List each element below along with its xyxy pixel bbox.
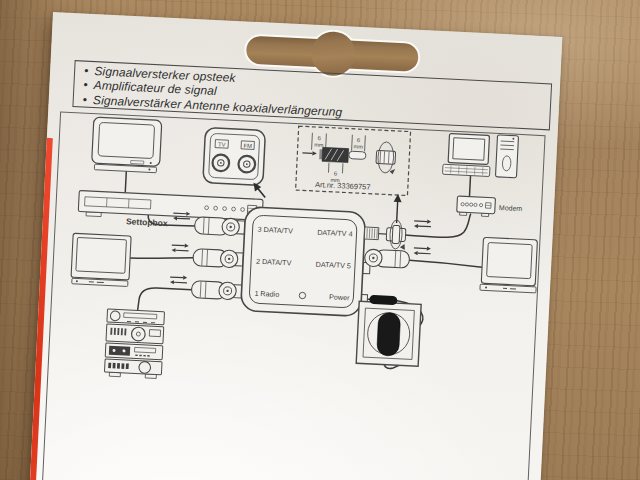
package-back-panel: •Signaalversterker opsteek •Amplificateu… <box>26 12 563 480</box>
splitter-box-icon <box>233 206 373 316</box>
splitter-port-label: Power <box>329 292 350 302</box>
connection-diagram: Settopbox <box>39 113 544 480</box>
cable-computer-modem <box>469 176 470 197</box>
coax-plug-icon <box>194 217 239 236</box>
double-arrow-icon <box>170 275 187 285</box>
bullet-glyph: • <box>82 92 87 106</box>
coax-plug-icon <box>364 249 409 268</box>
splitter-port-label: 1 Radio <box>254 289 279 299</box>
cable-tv2-splitter <box>130 255 193 261</box>
splitter-port-label: DATA/TV 5 <box>315 260 351 271</box>
double-arrow-icon <box>414 219 431 229</box>
dimension-unit: mm <box>314 141 324 147</box>
power-plug-icon <box>377 312 401 356</box>
coax-plug-icon <box>191 281 236 300</box>
splitter-port-label: 2 DATA/TV <box>256 257 292 268</box>
splitter-port-label: DATA/TV 4 <box>317 228 353 239</box>
cable-tv1-settopbox <box>125 171 126 193</box>
settopbox-label: Settopbox <box>126 216 168 228</box>
wall-plate-icon <box>203 128 266 186</box>
power-connector-icon <box>369 295 397 305</box>
bullet-glyph: • <box>83 78 88 92</box>
wall-plate-arrow-icon <box>253 182 266 197</box>
dimension-unit: mm <box>354 143 364 149</box>
computer-icon <box>443 132 519 178</box>
cable-stereo-splitter <box>137 287 191 314</box>
double-arrow-icon <box>171 243 188 253</box>
detail-callout-box: 6 mm 6 mm 6 mm <box>296 126 411 195</box>
diagram-frame: Settopbox <box>38 111 545 480</box>
threaded-adapter-icon <box>364 227 387 240</box>
modem-icon <box>457 196 496 217</box>
tv-right-icon <box>480 237 539 293</box>
modem-label: Modem <box>499 204 523 212</box>
tv-left-icon <box>71 233 131 286</box>
wall-plate-tv-label: TV <box>218 141 226 147</box>
stereo-system-icon <box>104 309 164 379</box>
coax-coupler-icon <box>386 220 406 250</box>
crt-tv-icon <box>91 117 161 173</box>
dimension-value: 6 <box>334 170 338 176</box>
splitter-port-label: 3 DATA/TV <box>257 225 293 236</box>
coax-plug-icon <box>193 249 238 268</box>
bullet-glyph: • <box>84 64 89 78</box>
cable-tv3-splitter <box>409 260 482 267</box>
art-number-label: Art.nr. 33369757 <box>315 180 371 192</box>
dimension-value: 6 <box>317 135 321 141</box>
callout-arrow-icon <box>393 194 402 223</box>
wall-plate-fm-label: FM <box>243 143 252 149</box>
double-arrow-icon <box>414 246 431 256</box>
dimension-value: 6 <box>357 137 361 143</box>
